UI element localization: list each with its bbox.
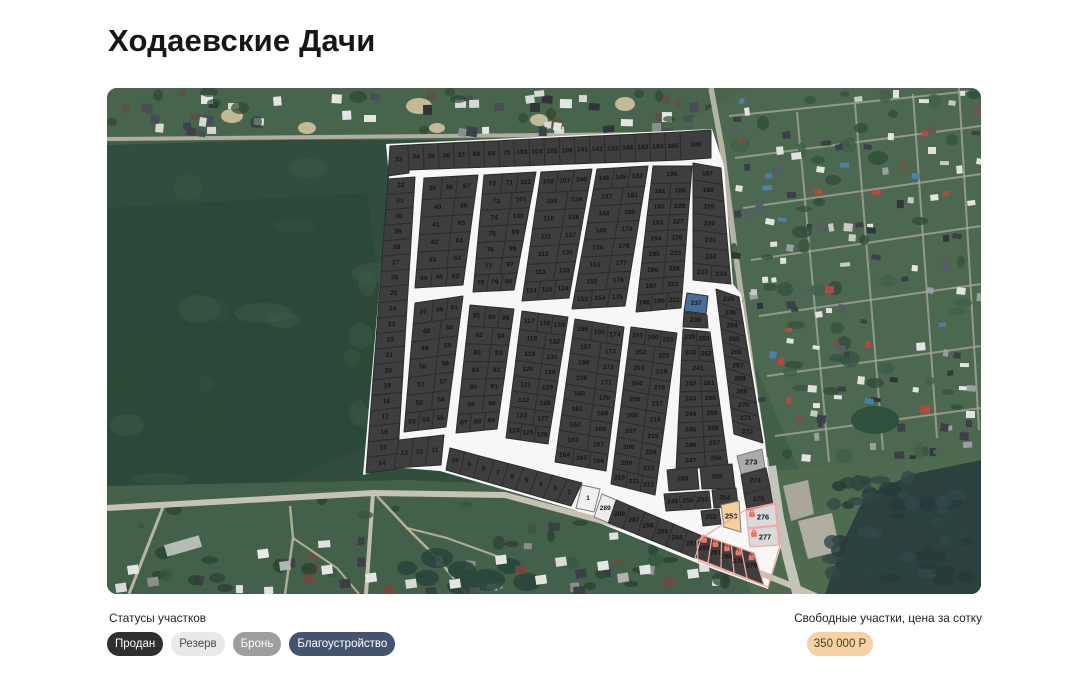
svg-text:47: 47 [419, 309, 427, 316]
svg-text:115: 115 [542, 287, 553, 294]
svg-text:145: 145 [615, 174, 626, 181]
svg-text:54: 54 [422, 417, 430, 424]
svg-text:63: 63 [453, 255, 461, 262]
svg-text:187: 187 [702, 170, 713, 177]
svg-text:245: 245 [685, 427, 696, 434]
svg-text:255: 255 [712, 474, 723, 481]
svg-text:240: 240 [685, 350, 696, 357]
svg-text:76: 76 [487, 247, 495, 254]
svg-text:154: 154 [594, 295, 605, 302]
svg-text:213: 213 [643, 465, 654, 472]
svg-text:35: 35 [428, 153, 436, 160]
svg-text:262: 262 [701, 350, 712, 357]
svg-text:21: 21 [386, 352, 394, 359]
svg-text:95: 95 [502, 315, 510, 322]
svg-text:17: 17 [381, 414, 389, 421]
svg-text:33: 33 [395, 157, 403, 164]
svg-text:7: 7 [496, 469, 500, 476]
svg-text:22: 22 [387, 336, 395, 343]
svg-text:159: 159 [576, 375, 587, 382]
svg-text:207: 207 [625, 428, 636, 435]
svg-text:244: 244 [685, 411, 696, 418]
svg-text:75: 75 [489, 231, 497, 238]
svg-text:215: 215 [647, 433, 658, 440]
svg-text:83: 83 [474, 350, 482, 357]
svg-text:66: 66 [460, 203, 468, 210]
svg-text:251: 251 [697, 497, 708, 504]
svg-text:125: 125 [523, 429, 534, 436]
svg-text:250: 250 [682, 498, 693, 505]
svg-text:135: 135 [559, 268, 570, 275]
svg-text:107: 107 [559, 178, 570, 185]
svg-text:42: 42 [430, 239, 438, 246]
svg-text:263: 263 [698, 335, 709, 342]
svg-text:286: 286 [643, 523, 654, 530]
svg-text:254: 254 [719, 495, 730, 502]
svg-text:279: 279 [733, 558, 744, 565]
svg-text:133: 133 [554, 322, 565, 329]
svg-text:60: 60 [446, 325, 454, 332]
svg-text:57: 57 [439, 379, 447, 386]
svg-text:127: 127 [537, 415, 548, 422]
svg-text:88: 88 [474, 419, 482, 426]
svg-text:247: 247 [685, 457, 696, 464]
svg-text:55: 55 [436, 415, 444, 422]
svg-text:41: 41 [432, 222, 440, 229]
svg-text:193: 193 [652, 220, 663, 227]
svg-text:167: 167 [593, 442, 604, 449]
svg-text:89: 89 [488, 417, 496, 424]
svg-text:220: 220 [658, 352, 669, 359]
svg-text:120: 120 [522, 366, 533, 373]
svg-text:224: 224 [669, 266, 680, 273]
svg-text:28: 28 [393, 244, 401, 251]
svg-text:227: 227 [673, 219, 684, 226]
svg-text:155: 155 [594, 329, 605, 336]
svg-text:236: 236 [725, 309, 736, 316]
svg-text:20: 20 [385, 367, 393, 374]
svg-text:156: 156 [577, 326, 588, 333]
svg-text:124: 124 [509, 427, 520, 434]
svg-text:68: 68 [473, 151, 481, 158]
svg-text:278: 278 [746, 563, 757, 570]
svg-text:153: 153 [577, 296, 588, 303]
svg-text:16: 16 [380, 429, 388, 436]
svg-text:37: 37 [458, 152, 466, 159]
svg-text:24: 24 [389, 306, 397, 313]
svg-text:182: 182 [632, 173, 643, 180]
svg-text:121: 121 [520, 382, 531, 389]
svg-text:56: 56 [437, 397, 445, 404]
svg-text:74: 74 [491, 214, 499, 221]
svg-text:197: 197 [645, 283, 656, 290]
svg-text:289: 289 [600, 505, 611, 512]
svg-text:34: 34 [412, 154, 420, 161]
svg-text:243: 243 [685, 396, 696, 403]
svg-text:134: 134 [557, 286, 568, 293]
svg-text:50: 50 [419, 364, 427, 371]
svg-text:51: 51 [417, 381, 425, 388]
svg-text:72: 72 [489, 181, 497, 188]
svg-text:109: 109 [546, 198, 557, 205]
svg-text:194: 194 [650, 235, 661, 242]
svg-text:241: 241 [692, 365, 703, 372]
svg-text:199: 199 [654, 298, 665, 305]
svg-text:80: 80 [488, 314, 496, 321]
svg-text:43: 43 [429, 257, 437, 264]
svg-text:191: 191 [654, 188, 665, 195]
svg-text:249: 249 [667, 499, 678, 506]
svg-text:217: 217 [652, 401, 663, 408]
svg-text:6: 6 [510, 473, 514, 480]
svg-text:65: 65 [458, 220, 466, 227]
svg-text:264: 264 [727, 323, 738, 330]
svg-text:4: 4 [539, 481, 543, 488]
svg-text:171: 171 [601, 379, 612, 386]
svg-text:205: 205 [629, 397, 640, 404]
svg-text:61: 61 [451, 304, 459, 311]
svg-text:138: 138 [568, 214, 579, 221]
svg-text:73: 73 [492, 198, 500, 205]
svg-text:116: 116 [539, 320, 550, 327]
svg-text:257: 257 [709, 440, 720, 447]
svg-text:211: 211 [629, 478, 640, 485]
svg-text:13: 13 [400, 450, 408, 457]
svg-text:166: 166 [593, 458, 604, 465]
svg-text:237: 237 [691, 300, 702, 307]
svg-text:225: 225 [670, 250, 681, 257]
svg-text:94: 94 [497, 333, 505, 340]
svg-text:288: 288 [614, 511, 625, 518]
svg-text:96: 96 [505, 278, 513, 285]
svg-text:238: 238 [690, 317, 701, 324]
svg-text:1: 1 [586, 495, 590, 502]
svg-text:18: 18 [382, 398, 390, 405]
svg-text:8: 8 [482, 465, 486, 472]
svg-text:117: 117 [524, 318, 535, 325]
svg-text:78: 78 [477, 280, 485, 287]
svg-text:105: 105 [547, 148, 558, 155]
svg-text:266: 266 [731, 349, 742, 356]
svg-text:46: 46 [436, 307, 444, 314]
svg-text:219: 219 [656, 368, 667, 375]
svg-text:158: 158 [578, 360, 589, 367]
svg-text:137: 137 [565, 232, 576, 239]
svg-text:150: 150 [592, 244, 603, 251]
svg-text:160: 160 [574, 391, 585, 398]
svg-text:226: 226 [671, 234, 682, 241]
svg-text:269: 269 [736, 389, 747, 396]
svg-text:132: 132 [549, 338, 560, 345]
svg-text:123: 123 [516, 412, 527, 419]
svg-text:82: 82 [476, 332, 484, 339]
svg-text:157: 157 [580, 344, 591, 351]
svg-text:270: 270 [738, 402, 749, 409]
svg-text:106: 106 [562, 147, 573, 154]
svg-text:280: 280 [721, 554, 732, 561]
svg-text:235: 235 [723, 296, 734, 303]
svg-text:99: 99 [512, 229, 520, 236]
svg-text:130: 130 [544, 369, 555, 376]
svg-text:26: 26 [391, 275, 399, 282]
svg-text:67: 67 [463, 183, 471, 190]
svg-text:228: 228 [674, 203, 685, 210]
svg-text:98: 98 [509, 246, 517, 253]
svg-text:259: 259 [706, 410, 717, 417]
svg-text:242: 242 [685, 380, 696, 387]
svg-text:52: 52 [416, 399, 424, 406]
svg-text:277: 277 [759, 532, 771, 541]
svg-text:209: 209 [621, 460, 632, 467]
svg-text:260: 260 [705, 395, 716, 402]
svg-text:275: 275 [753, 496, 764, 503]
svg-text:113: 113 [535, 269, 546, 276]
svg-text:258: 258 [708, 425, 719, 432]
svg-text:108: 108 [543, 179, 554, 186]
svg-text:30: 30 [395, 213, 403, 220]
svg-text:183: 183 [637, 144, 648, 151]
svg-text:229: 229 [703, 204, 714, 211]
svg-text:49: 49 [421, 346, 429, 353]
svg-text:10: 10 [451, 458, 459, 465]
svg-text:9: 9 [468, 461, 472, 468]
svg-text:200: 200 [647, 335, 658, 342]
svg-text:168: 168 [595, 426, 606, 433]
svg-text:173: 173 [605, 348, 616, 355]
svg-text:203: 203 [633, 365, 644, 372]
svg-text:218: 218 [654, 385, 665, 392]
svg-text:101: 101 [515, 197, 526, 204]
svg-text:174: 174 [609, 332, 620, 339]
svg-text:265: 265 [729, 336, 740, 343]
svg-text:141: 141 [577, 147, 588, 154]
svg-text:23: 23 [388, 321, 396, 328]
svg-text:176: 176 [613, 277, 624, 284]
svg-text:234: 234 [715, 271, 726, 278]
svg-text:129: 129 [542, 385, 553, 392]
svg-text:81: 81 [473, 313, 481, 320]
svg-text:201: 201 [632, 332, 643, 339]
svg-text:64: 64 [456, 238, 464, 245]
svg-text:143: 143 [607, 145, 618, 152]
svg-text:261: 261 [703, 380, 714, 387]
svg-text:276: 276 [757, 513, 769, 522]
svg-text:19: 19 [384, 383, 392, 390]
svg-text:181: 181 [627, 192, 638, 199]
svg-text:239: 239 [684, 334, 695, 341]
svg-text:210: 210 [614, 474, 625, 481]
svg-text:62: 62 [452, 273, 460, 280]
svg-text:196: 196 [647, 267, 658, 274]
svg-text:285: 285 [657, 529, 668, 536]
svg-text:15: 15 [379, 444, 387, 451]
svg-text:119: 119 [524, 351, 535, 358]
svg-text:170: 170 [599, 395, 610, 402]
svg-text:195: 195 [649, 251, 660, 258]
svg-text:151: 151 [589, 261, 600, 268]
svg-text:169: 169 [597, 410, 608, 417]
svg-text:192: 192 [654, 204, 665, 211]
svg-text:110: 110 [543, 216, 554, 223]
svg-text:25: 25 [390, 290, 398, 297]
svg-text:273: 273 [745, 457, 757, 466]
svg-text:177: 177 [616, 260, 627, 267]
svg-text:5: 5 [525, 477, 529, 484]
svg-text:40: 40 [434, 204, 442, 211]
svg-text:256: 256 [710, 455, 721, 462]
svg-text:274: 274 [750, 477, 761, 484]
svg-text:140: 140 [576, 177, 587, 184]
svg-text:27: 27 [392, 259, 400, 266]
svg-text:36: 36 [443, 152, 451, 159]
svg-text:248: 248 [677, 476, 688, 483]
svg-text:103: 103 [516, 149, 527, 156]
svg-text:144: 144 [622, 145, 633, 152]
svg-text:2: 2 [568, 489, 572, 496]
svg-text:272: 272 [742, 428, 753, 435]
svg-text:148: 148 [598, 210, 609, 217]
svg-text:59: 59 [444, 343, 452, 350]
svg-text:164: 164 [559, 452, 570, 459]
svg-text:233: 233 [697, 269, 708, 276]
svg-text:231: 231 [705, 237, 716, 244]
svg-text:230: 230 [704, 220, 715, 227]
svg-text:45: 45 [435, 274, 443, 281]
svg-text:172: 172 [603, 364, 614, 371]
svg-text:189: 189 [675, 188, 686, 195]
svg-text:93: 93 [495, 350, 503, 357]
svg-text:14: 14 [378, 460, 386, 467]
svg-text:90: 90 [488, 400, 496, 407]
svg-text:222: 222 [669, 297, 680, 304]
svg-text:178: 178 [618, 243, 629, 250]
svg-text:71: 71 [506, 180, 514, 187]
svg-text:112: 112 [538, 251, 549, 258]
svg-text:29: 29 [394, 229, 402, 236]
svg-text:114: 114 [526, 288, 537, 295]
svg-text:87: 87 [460, 420, 468, 427]
svg-text:271: 271 [740, 415, 751, 422]
svg-text:100: 100 [513, 213, 524, 220]
svg-text:102: 102 [520, 179, 531, 186]
svg-text:91: 91 [490, 384, 498, 391]
svg-text:69: 69 [488, 151, 496, 158]
svg-text:12: 12 [416, 449, 424, 456]
svg-text:70: 70 [503, 150, 511, 157]
svg-text:53: 53 [408, 418, 416, 425]
svg-text:104: 104 [531, 149, 542, 156]
svg-text:149: 149 [595, 227, 606, 234]
svg-text:180: 180 [624, 209, 635, 216]
svg-text:246: 246 [685, 442, 696, 449]
svg-text:190: 190 [666, 171, 677, 178]
svg-text:146: 146 [598, 175, 609, 182]
svg-text:139: 139 [571, 196, 582, 203]
svg-text:284: 284 [671, 535, 682, 542]
svg-text:79: 79 [491, 279, 499, 286]
svg-text:198: 198 [639, 300, 650, 307]
svg-text:206: 206 [627, 412, 638, 419]
svg-text:175: 175 [612, 294, 623, 301]
svg-text:232: 232 [705, 254, 716, 261]
svg-text:212: 212 [643, 482, 654, 489]
svg-text:136: 136 [562, 250, 573, 257]
svg-text:185: 185 [667, 143, 678, 150]
svg-text:208: 208 [623, 444, 634, 451]
svg-text:221: 221 [663, 337, 674, 344]
svg-text:3: 3 [553, 485, 557, 492]
svg-text:131: 131 [547, 354, 558, 361]
svg-text:38: 38 [445, 184, 453, 191]
svg-text:281: 281 [710, 549, 721, 556]
svg-text:86: 86 [467, 402, 475, 409]
svg-text:188: 188 [703, 187, 714, 194]
svg-text:287: 287 [628, 517, 639, 524]
svg-text:111: 111 [541, 233, 552, 240]
svg-text:184: 184 [652, 144, 663, 151]
svg-text:283: 283 [686, 541, 697, 548]
svg-text:142: 142 [592, 146, 603, 153]
svg-text:11: 11 [431, 447, 438, 454]
svg-text:179: 179 [621, 226, 632, 233]
svg-text:216: 216 [650, 417, 661, 424]
svg-text:161: 161 [572, 406, 583, 413]
svg-text:223: 223 [667, 281, 678, 288]
svg-text:163: 163 [568, 437, 579, 444]
svg-text:48: 48 [423, 328, 431, 335]
svg-text:147: 147 [601, 194, 612, 201]
svg-text:39: 39 [429, 185, 437, 192]
svg-text:252: 252 [705, 514, 716, 521]
svg-text:84: 84 [471, 367, 479, 374]
svg-text:128: 128 [540, 400, 551, 407]
svg-text:32: 32 [397, 182, 405, 189]
svg-text:165: 165 [576, 455, 587, 462]
svg-text:186: 186 [690, 142, 701, 149]
svg-text:118: 118 [527, 335, 538, 342]
svg-text:202: 202 [635, 349, 646, 356]
svg-text:97: 97 [506, 262, 514, 269]
svg-text:58: 58 [442, 361, 450, 368]
svg-text:85: 85 [469, 384, 477, 391]
svg-text:92: 92 [493, 367, 501, 374]
svg-text:214: 214 [645, 449, 656, 456]
svg-text:31: 31 [396, 198, 404, 205]
svg-text:77: 77 [485, 263, 493, 270]
svg-text:267: 267 [732, 362, 743, 369]
svg-text:152: 152 [586, 278, 597, 285]
svg-text:122: 122 [518, 397, 529, 404]
svg-text:44: 44 [420, 275, 428, 282]
svg-text:126: 126 [537, 431, 548, 438]
svg-text:162: 162 [570, 422, 581, 429]
svg-text:204: 204 [631, 381, 642, 388]
svg-text:268: 268 [734, 376, 745, 383]
svg-text:282: 282 [699, 545, 710, 552]
